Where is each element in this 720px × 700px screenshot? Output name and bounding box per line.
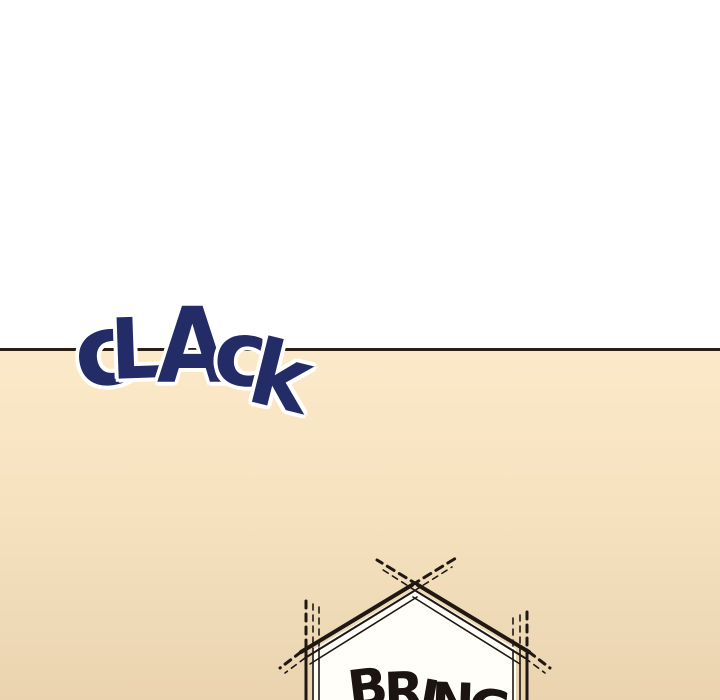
bubble-letter: G: [465, 682, 513, 700]
comic-panel: c L A c k: [0, 0, 720, 700]
